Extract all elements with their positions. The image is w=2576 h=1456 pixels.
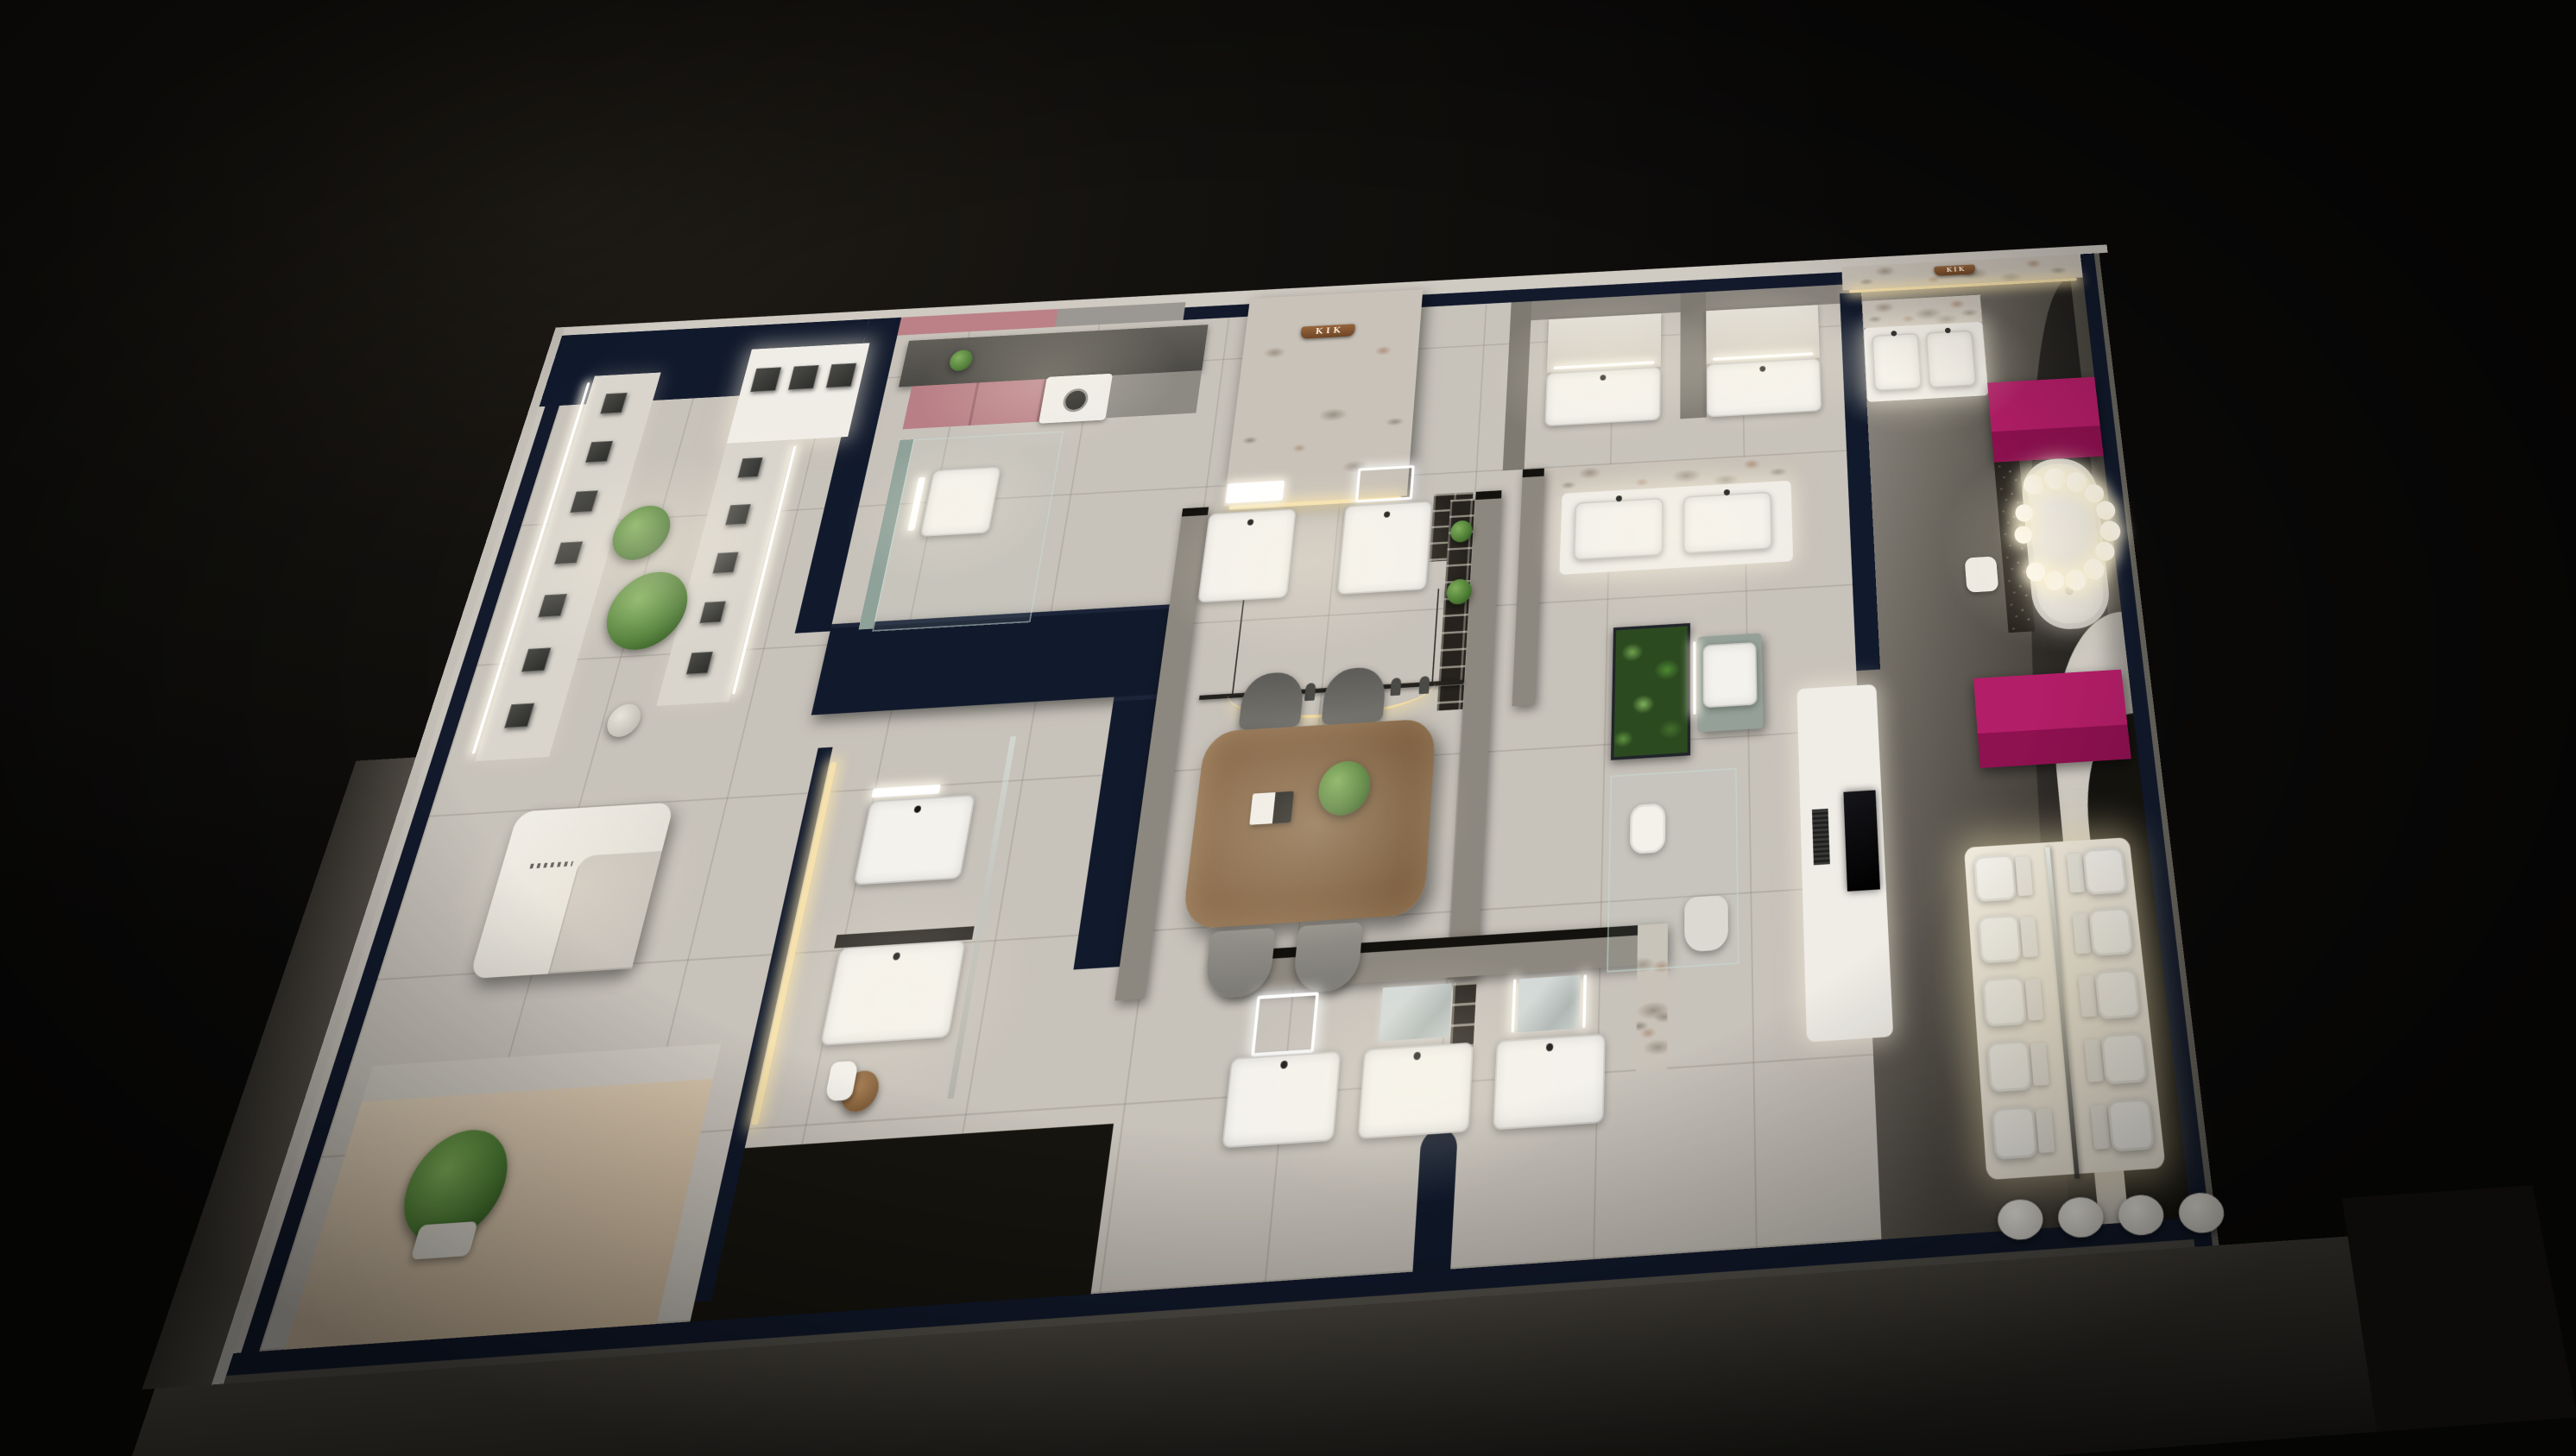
toilet [1986,1040,2032,1093]
toilet [2100,1032,2147,1085]
toilet [1992,1106,2038,1160]
toilet [1982,976,2027,1027]
speaker-grille [1812,809,1830,865]
floor-plan: KIK KIK [224,253,2219,1384]
demo-chair [1684,895,1728,953]
washing-machine [1039,374,1113,424]
showroom-render: KIK KIK [0,0,2576,1456]
sage-mirror-line [1693,641,1695,715]
laundry-gray-cabinets [1106,370,1203,418]
toilet [1978,914,2022,963]
bath-stool [1965,556,1999,592]
vanity-mirror [1379,983,1452,1041]
led-mirror-frame [1355,465,1415,502]
tv-screen [1843,790,1880,891]
toilet [2107,1098,2155,1151]
sage-vanity-basin [1703,642,1758,708]
toilet [2082,848,2127,895]
double-vanity-basin [1574,498,1664,560]
vanity-right-basin [1872,333,1922,391]
laundry-pink-cabinets [902,379,1046,429]
hand-shower-icon [1390,678,1401,696]
floor-dark-corner [690,1124,1114,1322]
wall-stub [1412,1128,1458,1272]
hand-shower-icon [1418,676,1430,694]
vanity-mirror [1518,975,1581,1032]
toilet [2088,907,2133,956]
dining-table [1181,718,1436,930]
vanity-glassroom [919,466,1001,537]
demo-toilet [1630,804,1666,854]
wall-gallery-divider [1680,292,1707,419]
led-mirror-left [1225,481,1285,504]
toilet [2094,969,2140,1020]
double-vanity-basin [1683,492,1772,554]
led-mirror-frame [1251,992,1319,1056]
vertical-garden [1611,623,1690,760]
open-shelf-unit [1450,981,1477,1048]
facade-east [2342,1185,2576,1432]
hand-shower-icon [1304,683,1316,701]
magenta-cabinet [1973,670,2131,768]
vanity-right-basin [1926,330,1977,388]
book-on-table [1249,791,1294,825]
magenta-display-panel [1987,377,2104,463]
toilet [1973,854,2017,902]
